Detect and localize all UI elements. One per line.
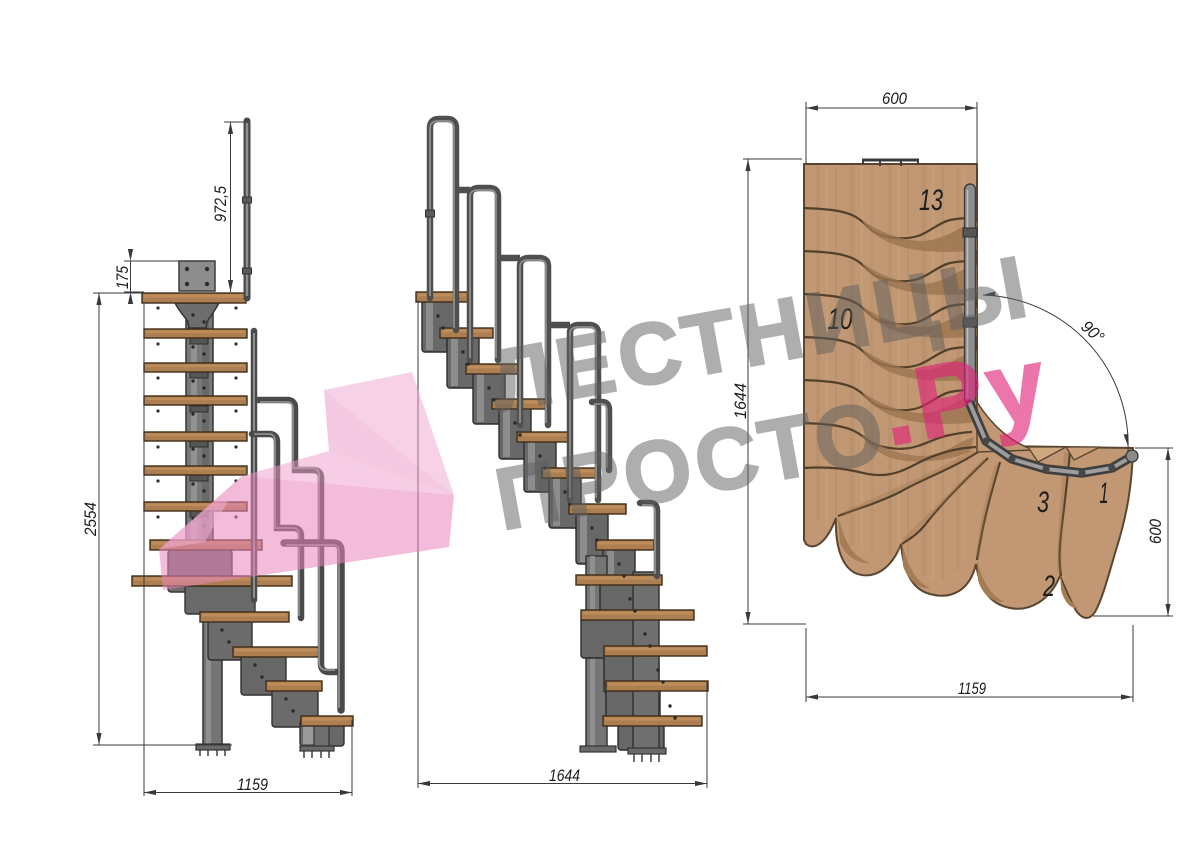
svg-text:2554: 2554 (81, 502, 100, 537)
svg-text:13: 13 (919, 184, 943, 217)
svg-text:972,5: 972,5 (211, 186, 230, 222)
svg-text:1: 1 (1100, 477, 1109, 510)
svg-text:1159: 1159 (958, 679, 986, 698)
svg-text:2: 2 (1042, 570, 1055, 603)
svg-text:1644: 1644 (549, 766, 580, 785)
svg-text:3: 3 (1037, 486, 1049, 519)
svg-text:600: 600 (1146, 519, 1165, 544)
svg-text:600: 600 (882, 89, 907, 108)
svg-text:175: 175 (113, 266, 132, 289)
svg-text:1159: 1159 (237, 775, 268, 794)
